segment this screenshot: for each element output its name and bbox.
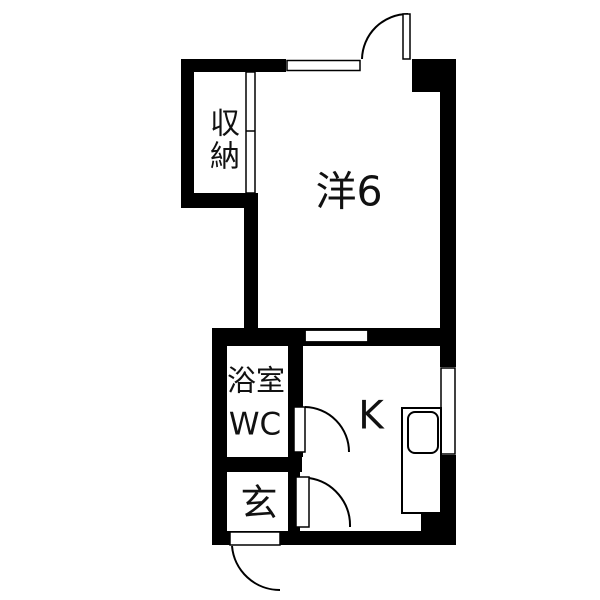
room-label-western-room: 洋6 xyxy=(315,172,382,213)
wall-upper-left xyxy=(181,59,194,208)
wall-pillar-top-right xyxy=(412,72,440,92)
door-leaf-entrance-exterior xyxy=(230,532,280,545)
wall-bathroom-entrance-divider xyxy=(212,457,302,472)
kitchen-sink xyxy=(408,412,438,453)
wall-mid-vertical xyxy=(244,193,258,346)
floorplan-canvas xyxy=(0,0,600,600)
room-label-entrance: 玄 xyxy=(241,485,278,522)
wall-corner-block xyxy=(421,513,456,545)
room-label-bathroom: 浴室 xyxy=(227,367,285,396)
door-leaf-entrance-kitchen xyxy=(296,477,309,527)
room-label-kitchen: K xyxy=(358,397,384,436)
door-leaf-top xyxy=(403,14,410,59)
wall-right xyxy=(440,59,456,545)
wall-lower-left xyxy=(212,328,227,545)
door-opening-top xyxy=(361,59,412,72)
floorplan: 収納 洋6 浴室 WC 玄 K xyxy=(0,0,600,600)
closet-sliding-partition xyxy=(246,72,255,193)
room-label-wc: WC xyxy=(229,410,281,441)
window-kitchen-right-wall xyxy=(441,368,455,454)
door-leaf-bathroom xyxy=(294,407,305,452)
room-label-closet: 収納 xyxy=(206,107,236,173)
window-kitchen-top-wall xyxy=(305,330,368,342)
window-top-wall xyxy=(287,61,360,71)
